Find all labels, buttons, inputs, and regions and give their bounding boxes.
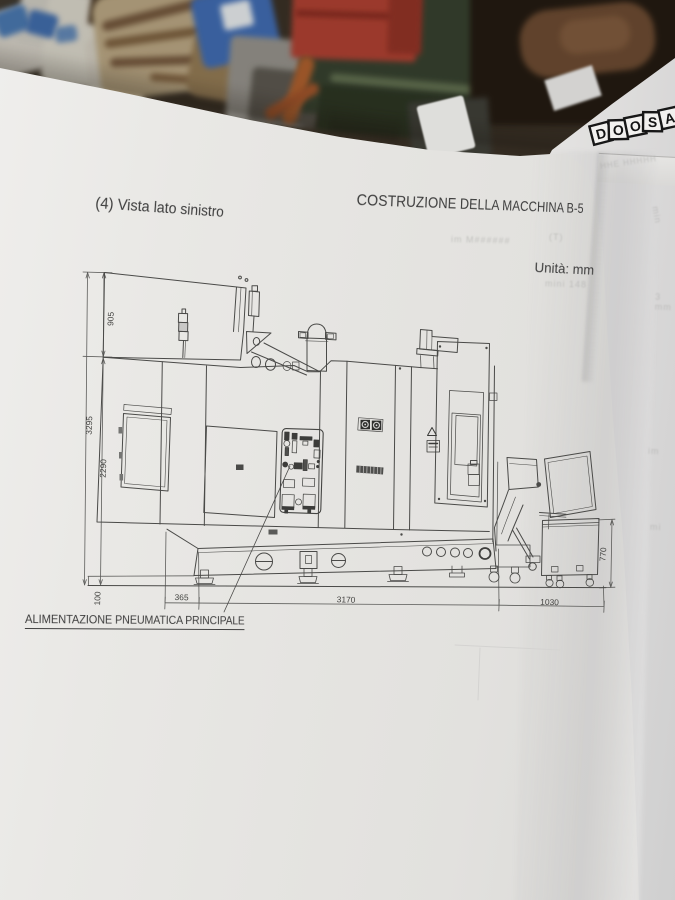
svg-text:2290: 2290	[98, 459, 109, 478]
svg-text:365: 365	[174, 592, 189, 602]
svg-text:3295: 3295	[84, 416, 95, 435]
svg-text:770: 770	[597, 547, 608, 562]
svg-text:100: 100	[92, 591, 102, 606]
svg-text:3170: 3170	[337, 594, 356, 604]
svg-text:905: 905	[105, 311, 115, 326]
svg-text:1030: 1030	[540, 597, 559, 607]
